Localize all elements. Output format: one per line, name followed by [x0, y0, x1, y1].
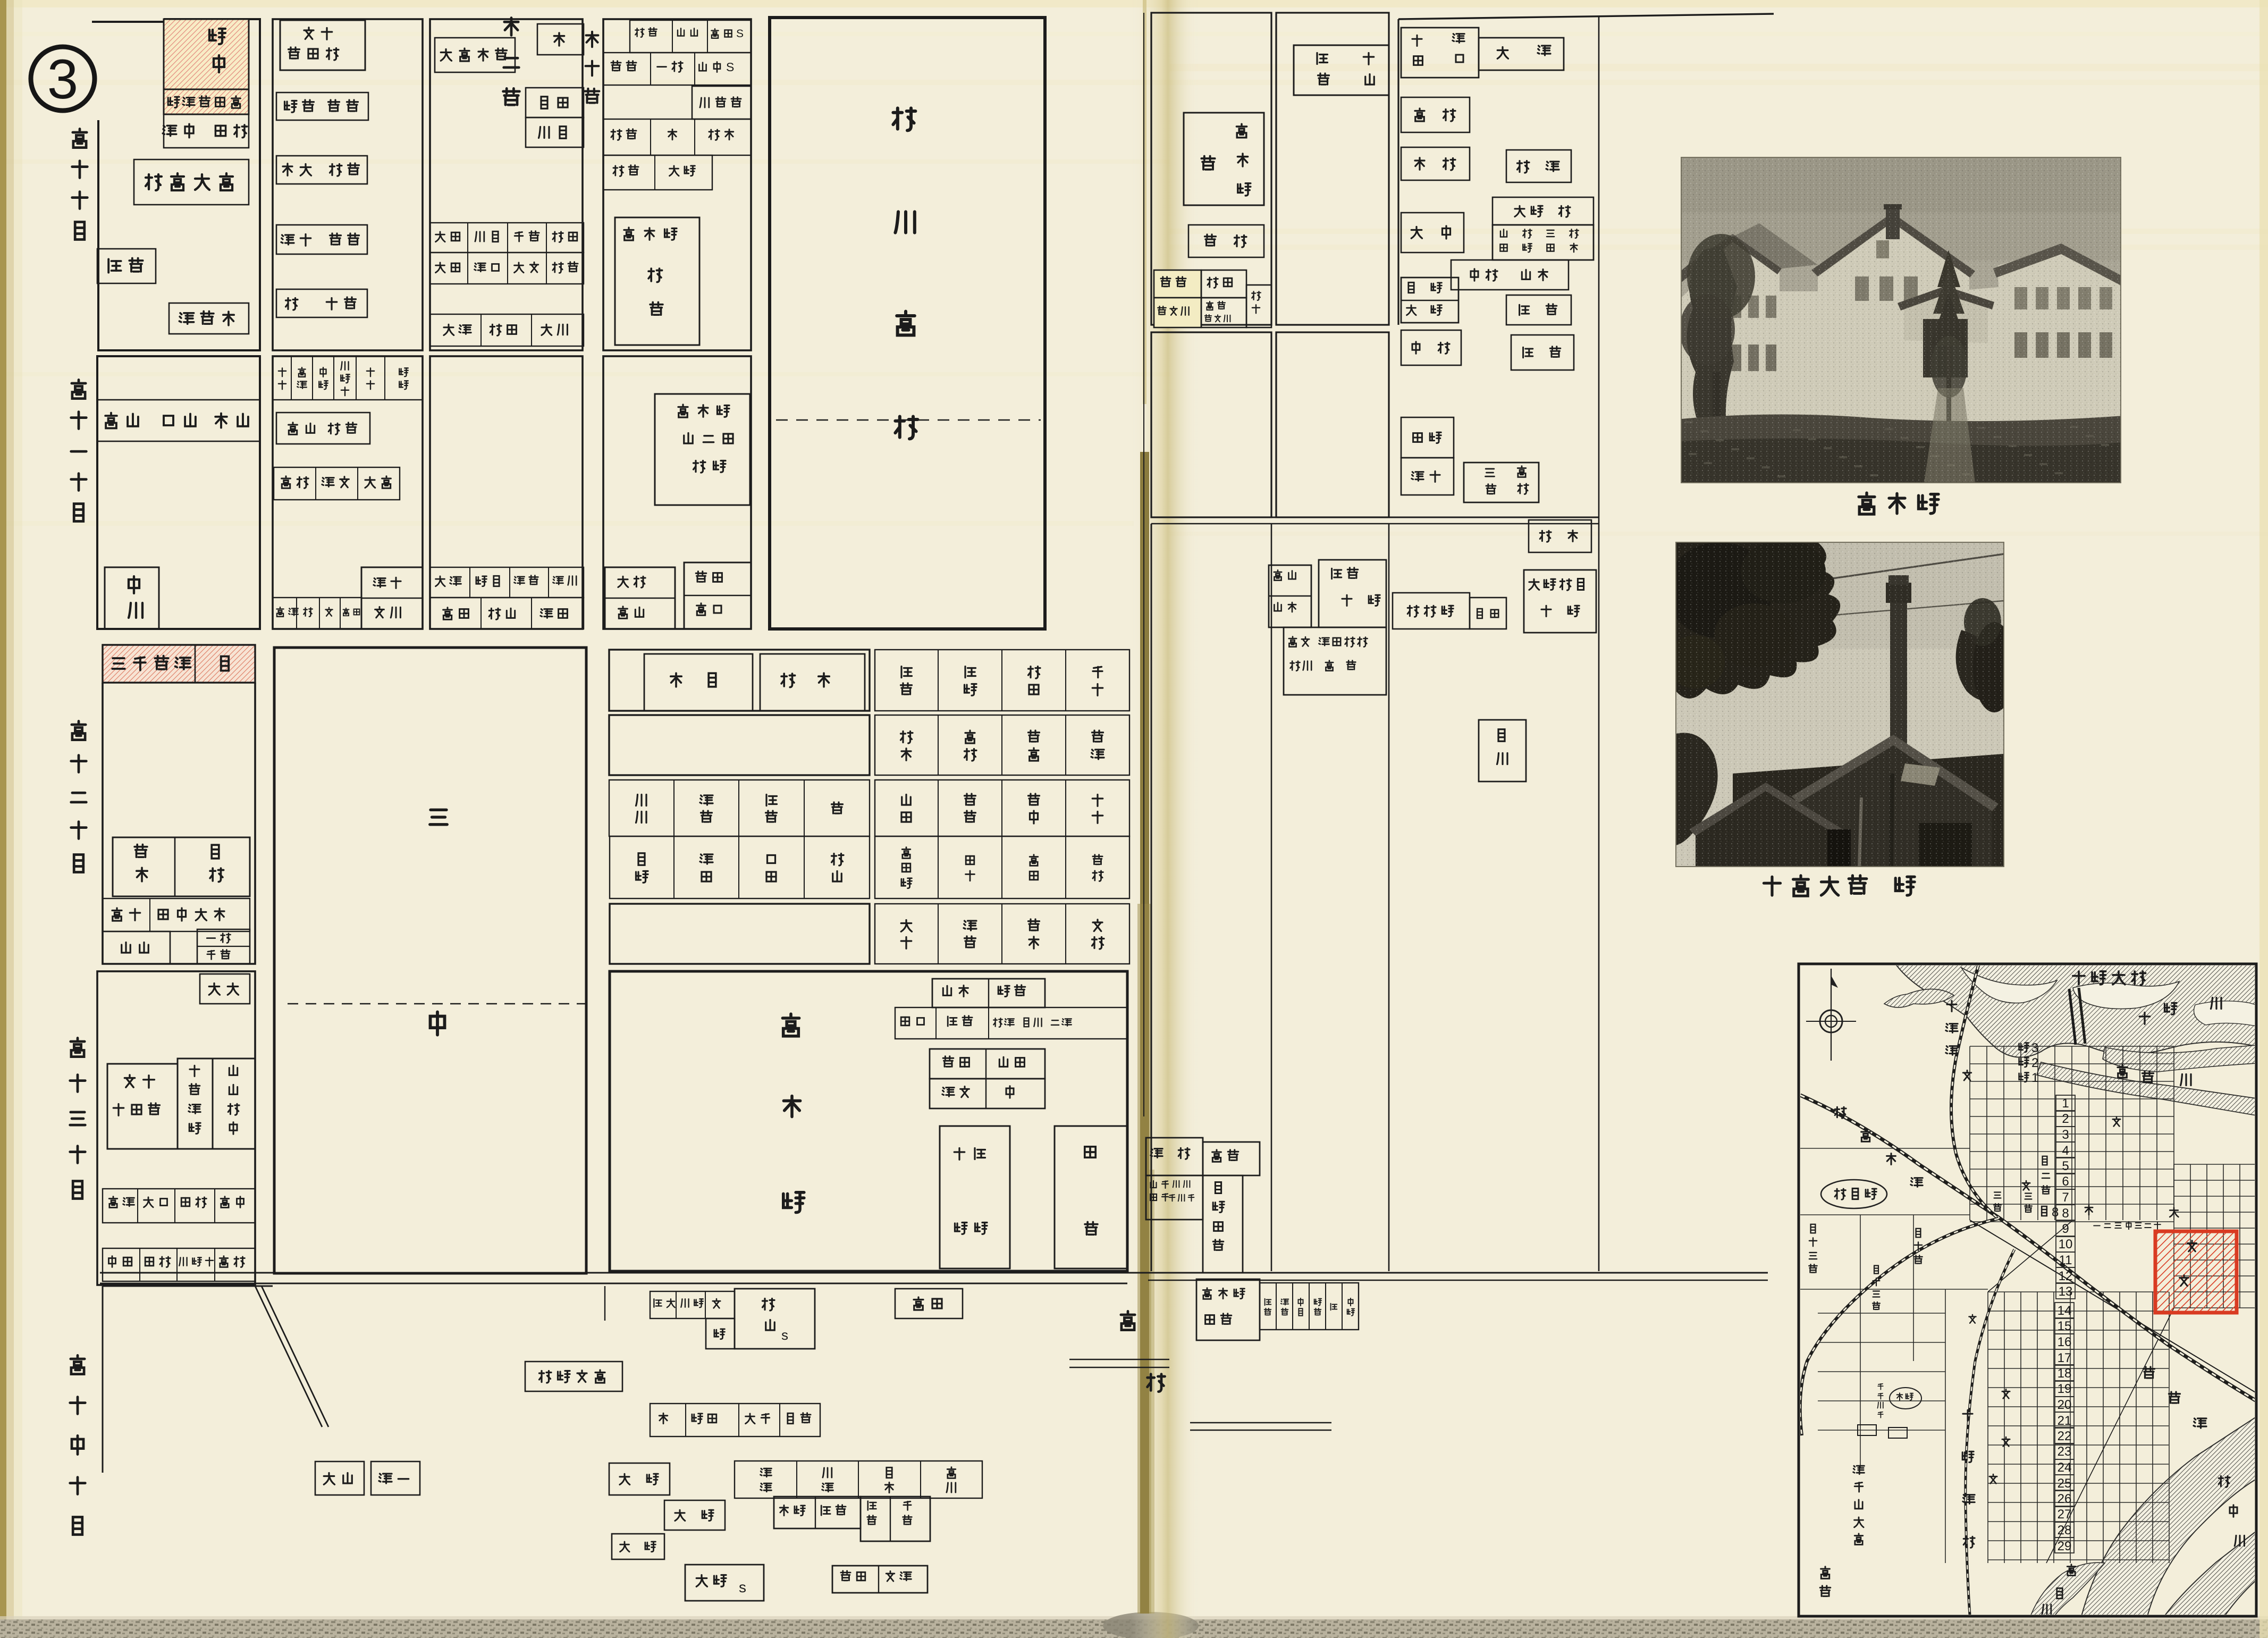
svg-text:s: s [739, 1579, 746, 1595]
svg-text:3: 3 [2062, 1128, 2069, 1142]
svg-text:3: 3 [47, 48, 78, 111]
svg-text:14: 14 [2058, 1304, 2072, 1318]
svg-text:17: 17 [2058, 1351, 2072, 1365]
svg-text:29: 29 [2058, 1539, 2072, 1553]
svg-text:10: 10 [2059, 1237, 2073, 1251]
svg-text:28: 28 [2058, 1523, 2072, 1538]
svg-text:18: 18 [2058, 1366, 2072, 1381]
svg-text:s: s [781, 1327, 788, 1343]
svg-text:12: 12 [2059, 1269, 2073, 1283]
svg-text:16: 16 [2058, 1335, 2072, 1349]
svg-text:5: 5 [2062, 1159, 2069, 1173]
svg-text:27: 27 [2058, 1507, 2072, 1522]
svg-text:21: 21 [2058, 1414, 2072, 1428]
svg-text:2: 2 [2062, 1112, 2069, 1126]
svg-text:8: 8 [2062, 1206, 2069, 1221]
svg-text:9: 9 [2062, 1222, 2069, 1236]
svg-text:25: 25 [2058, 1476, 2072, 1491]
svg-text:13: 13 [2059, 1284, 2073, 1299]
svg-text:8: 8 [2052, 1205, 2059, 1220]
svg-text:1: 1 [2031, 1071, 2038, 1085]
svg-text:23: 23 [2058, 1444, 2072, 1459]
svg-text:S: S [726, 60, 734, 74]
svg-text:1: 1 [2062, 1096, 2069, 1111]
svg-text:22: 22 [2058, 1429, 2072, 1443]
svg-text:S: S [736, 28, 744, 40]
svg-text:11: 11 [2059, 1253, 2072, 1267]
svg-text:2: 2 [2031, 1056, 2038, 1070]
svg-text:26: 26 [2058, 1492, 2072, 1506]
svg-text:3: 3 [2031, 1041, 2038, 1055]
svg-text:24: 24 [2058, 1460, 2072, 1475]
svg-text:7: 7 [2062, 1190, 2069, 1205]
svg-text:6: 6 [2062, 1174, 2069, 1189]
svg-text:19: 19 [2058, 1382, 2072, 1396]
svg-text:15: 15 [2058, 1319, 2072, 1333]
svg-text:20: 20 [2058, 1398, 2072, 1412]
svg-text:4: 4 [2062, 1144, 2069, 1158]
